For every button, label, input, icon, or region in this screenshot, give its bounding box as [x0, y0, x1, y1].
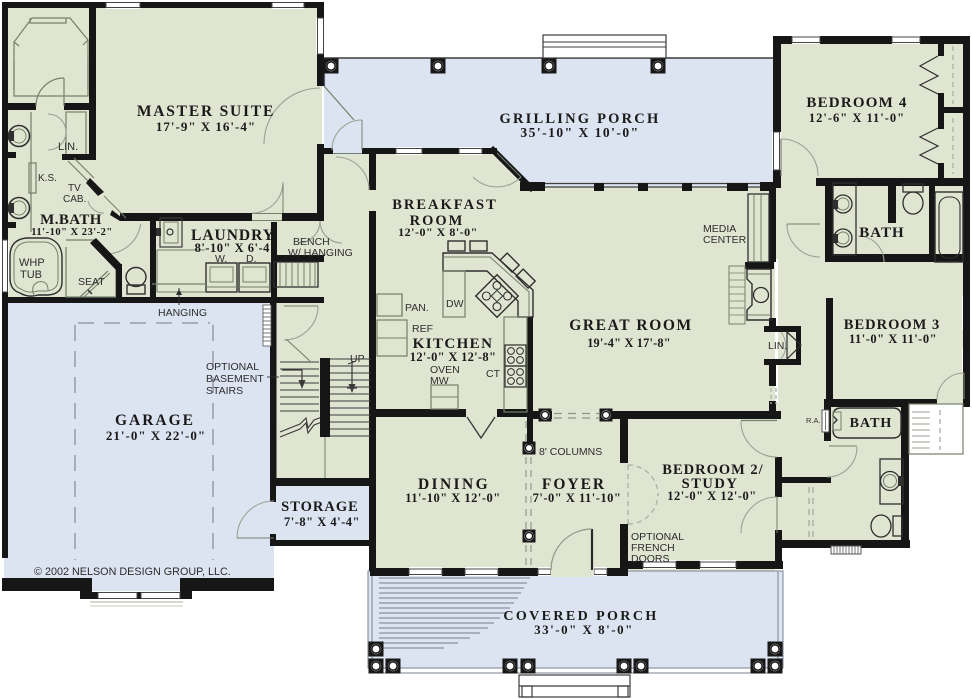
- svg-text:TV: TV: [68, 183, 81, 194]
- svg-text:OPTIONAL: OPTIONAL: [206, 361, 259, 373]
- svg-text:BEDROOM 4: BEDROOM 4: [806, 95, 907, 111]
- svg-text:PAN.: PAN.: [405, 302, 429, 314]
- svg-text:DOORS: DOORS: [631, 553, 670, 565]
- svg-text:STAIRS: STAIRS: [206, 385, 243, 397]
- svg-text:BATH: BATH: [859, 225, 904, 241]
- svg-text:K.S.: K.S.: [38, 173, 57, 184]
- svg-text:TUB: TUB: [20, 269, 42, 281]
- svg-text:CT: CT: [486, 368, 501, 380]
- svg-text:35'-10" X 10'-0": 35'-10" X 10'-0": [520, 125, 639, 140]
- svg-text:W/ HANGING: W/ HANGING: [288, 247, 353, 259]
- svg-text:11'-10" X 12'-0": 11'-10" X 12'-0": [405, 491, 501, 505]
- svg-text:REF: REF: [412, 323, 433, 335]
- svg-text:WHP: WHP: [19, 257, 45, 269]
- svg-text:DW: DW: [446, 298, 464, 310]
- svg-text:8'-10" X 6'-4": 8'-10" X 6'-4": [195, 241, 278, 255]
- svg-text:BREAKFAST: BREAKFAST: [392, 197, 498, 213]
- svg-text:BEDROOM 3: BEDROOM 3: [844, 317, 940, 333]
- svg-text:HANGING: HANGING: [158, 307, 207, 319]
- svg-text:LIN.: LIN.: [768, 340, 787, 352]
- svg-text:GARAGE: GARAGE: [115, 412, 195, 429]
- svg-text:BATH: BATH: [850, 416, 893, 431]
- svg-text:19'-4" X 17'-8": 19'-4" X 17'-8": [587, 336, 671, 350]
- svg-text:12'-0" X 8'-0": 12'-0" X 8'-0": [398, 225, 478, 239]
- svg-text:M.BATH: M.BATH: [40, 212, 102, 228]
- svg-text:21'-0" X 22'-0": 21'-0" X 22'-0": [106, 428, 206, 443]
- svg-text:8' COLUMNS: 8' COLUMNS: [539, 446, 602, 458]
- svg-text:UP: UP: [350, 353, 365, 365]
- svg-text:STORAGE: STORAGE: [281, 499, 359, 515]
- svg-text:CENTER: CENTER: [703, 234, 747, 246]
- svg-text:11'-10" X 23'-2": 11'-10" X 23'-2": [31, 227, 113, 238]
- svg-text:SEAT: SEAT: [78, 276, 105, 288]
- svg-text:17'-9" X 16'-4": 17'-9" X 16'-4": [156, 119, 256, 134]
- svg-text:MASTER SUITE: MASTER SUITE: [137, 103, 275, 120]
- svg-text:© 2002 NELSON DESIGN GROUP, LL: © 2002 NELSON DESIGN GROUP, LLC.: [34, 566, 231, 578]
- svg-text:11'-0" X 11'-0": 11'-0" X 11'-0": [849, 332, 937, 346]
- svg-text:R.A.: R.A.: [806, 416, 821, 425]
- svg-text:MW: MW: [430, 375, 449, 387]
- svg-text:33'-0" X 8'-0": 33'-0" X 8'-0": [534, 622, 634, 637]
- svg-text:7'-0" X 11'-10": 7'-0" X 11'-10": [533, 491, 622, 505]
- svg-text:12'-6" X 11'-0": 12'-6" X 11'-0": [809, 111, 905, 125]
- svg-text:BASEMENT: BASEMENT: [206, 373, 264, 385]
- svg-text:7'-8" X 4'-4": 7'-8" X 4'-4": [284, 515, 360, 529]
- svg-text:CAB.: CAB.: [63, 194, 86, 205]
- svg-text:LIN.: LIN.: [58, 141, 78, 153]
- svg-text:GREAT ROOM: GREAT ROOM: [569, 317, 693, 334]
- svg-text:12'-0" X 12'-8": 12'-0" X 12'-8": [410, 350, 496, 364]
- svg-text:12'-0" X 12'-0": 12'-0" X 12'-0": [667, 489, 756, 503]
